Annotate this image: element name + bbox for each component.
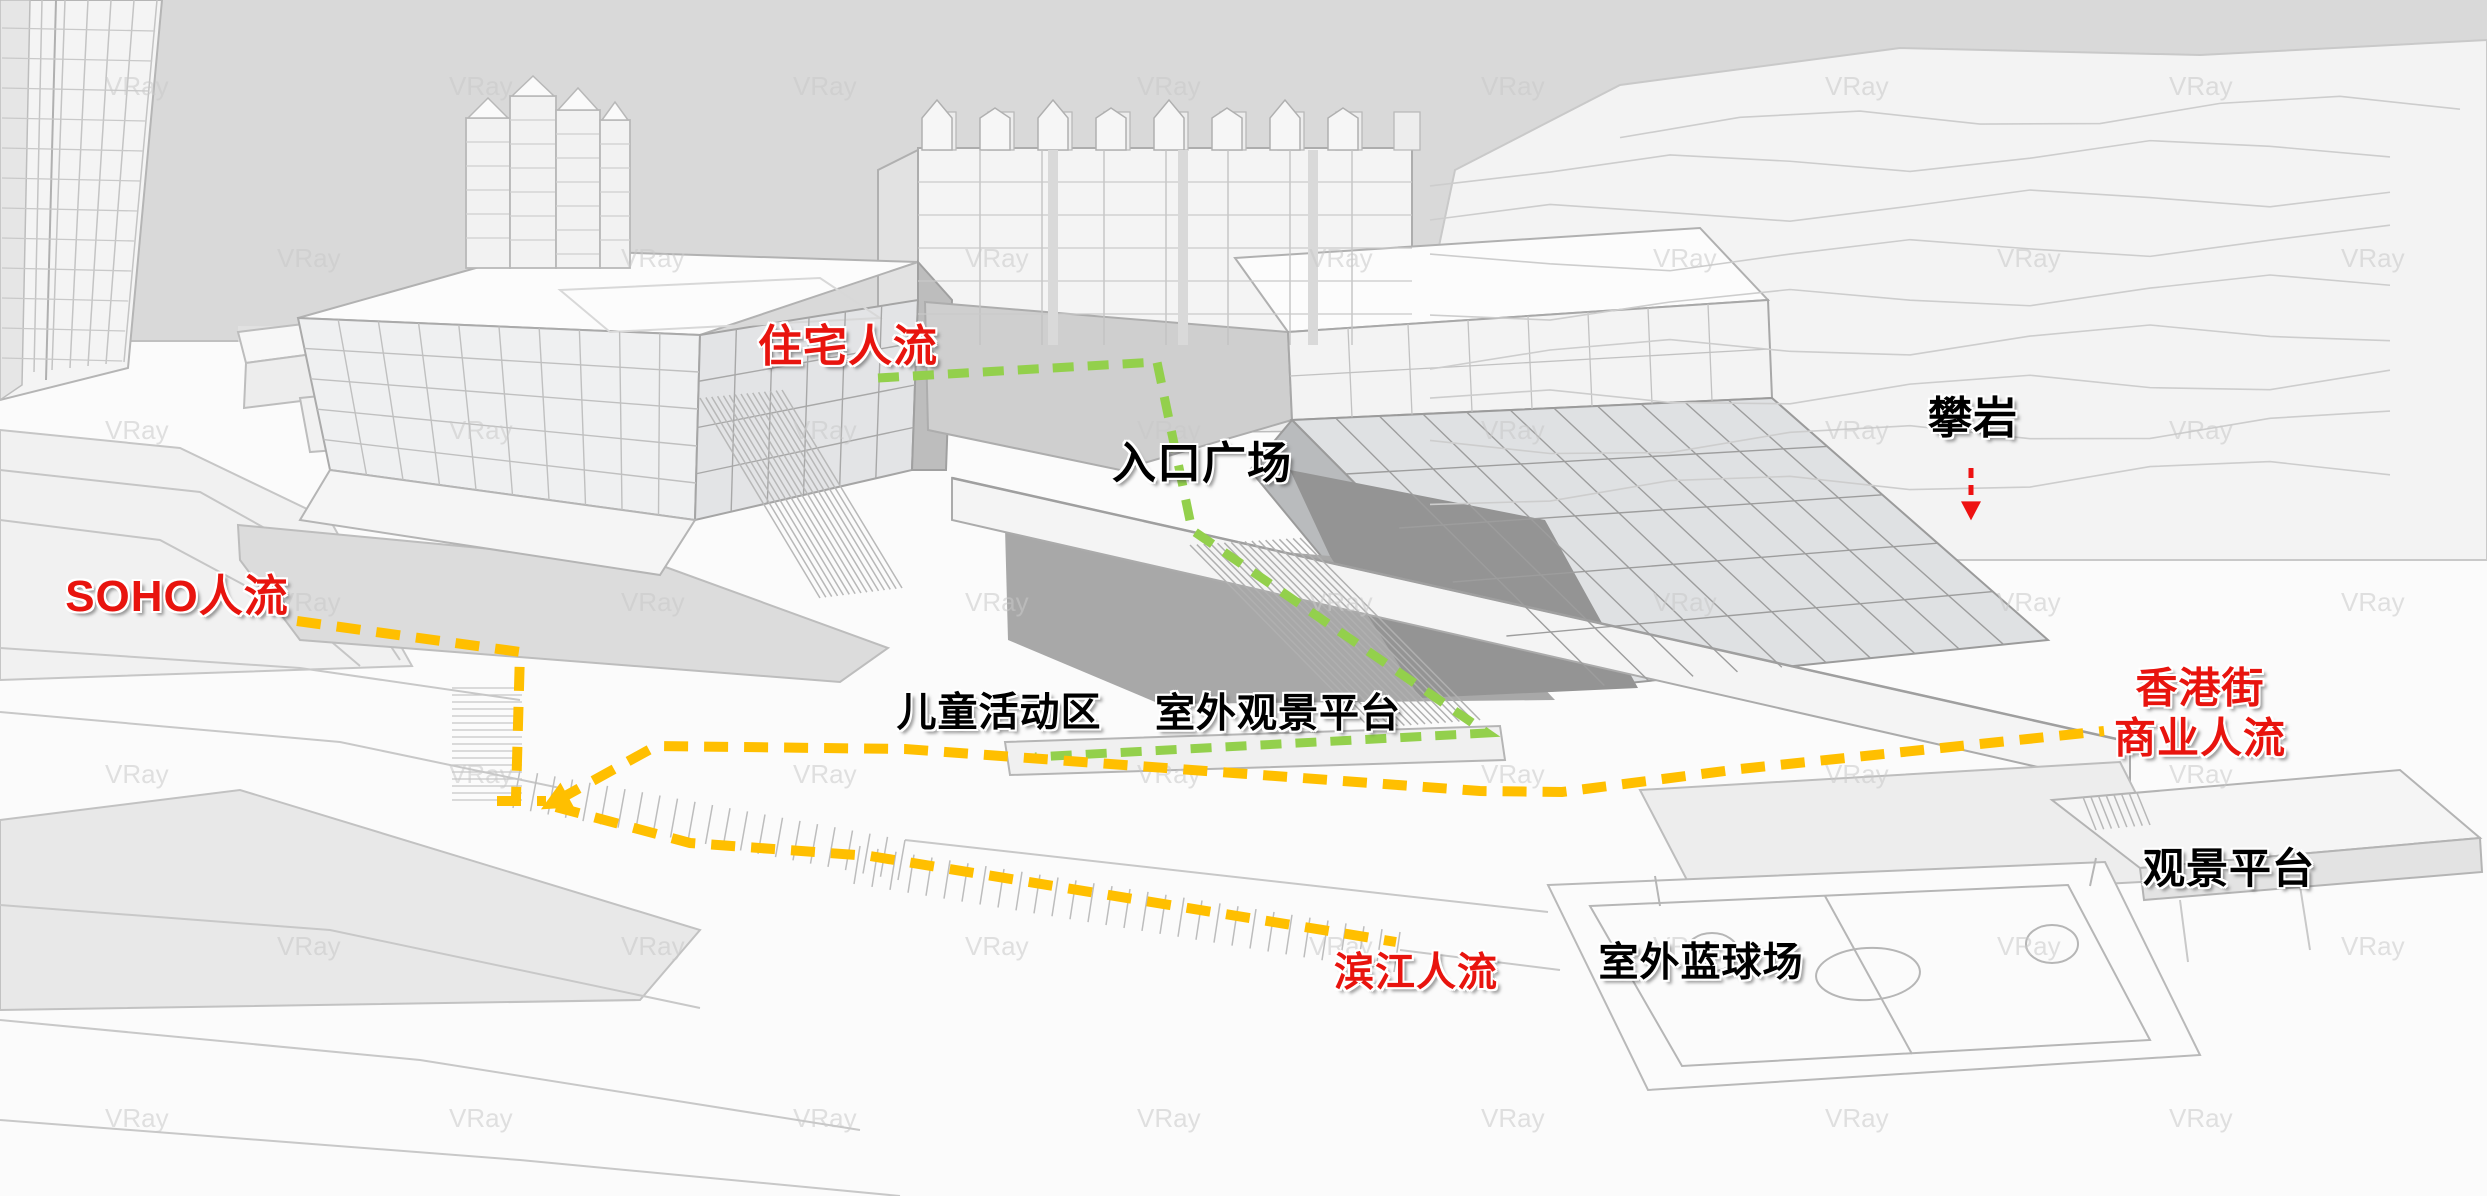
climbing-arrow-arrowhead <box>1961 501 1981 520</box>
riverside-flow-line <box>556 807 1396 942</box>
label-children-area: 儿童活动区 <box>897 689 1102 736</box>
label-residential-flow: 住宅人流 <box>758 321 938 373</box>
label-basketball-court: 室外蓝球场 <box>1599 939 1804 986</box>
circulation-diagram: VRayVRayVRayVRayVRayVRayVRayVRayVRayVRay… <box>0 0 2487 1196</box>
flow-overlay <box>0 0 2487 1196</box>
label-outdoor-platform: 室外观景平台 <box>1155 690 1401 737</box>
label-hk-commercial-flow: 香港街 商业人流 <box>2114 663 2286 762</box>
label-rock-climbing: 攀岩 <box>1928 393 2018 445</box>
label-viewing-platform: 观景平台 <box>2143 844 2315 894</box>
label-riverside-flow: 滨江人流 <box>1334 949 1498 996</box>
soho-flow-line <box>297 621 520 797</box>
label-entrance-plaza: 入口广场 <box>1112 438 1292 490</box>
label-soho-flow: SOHO人流 <box>65 571 289 623</box>
